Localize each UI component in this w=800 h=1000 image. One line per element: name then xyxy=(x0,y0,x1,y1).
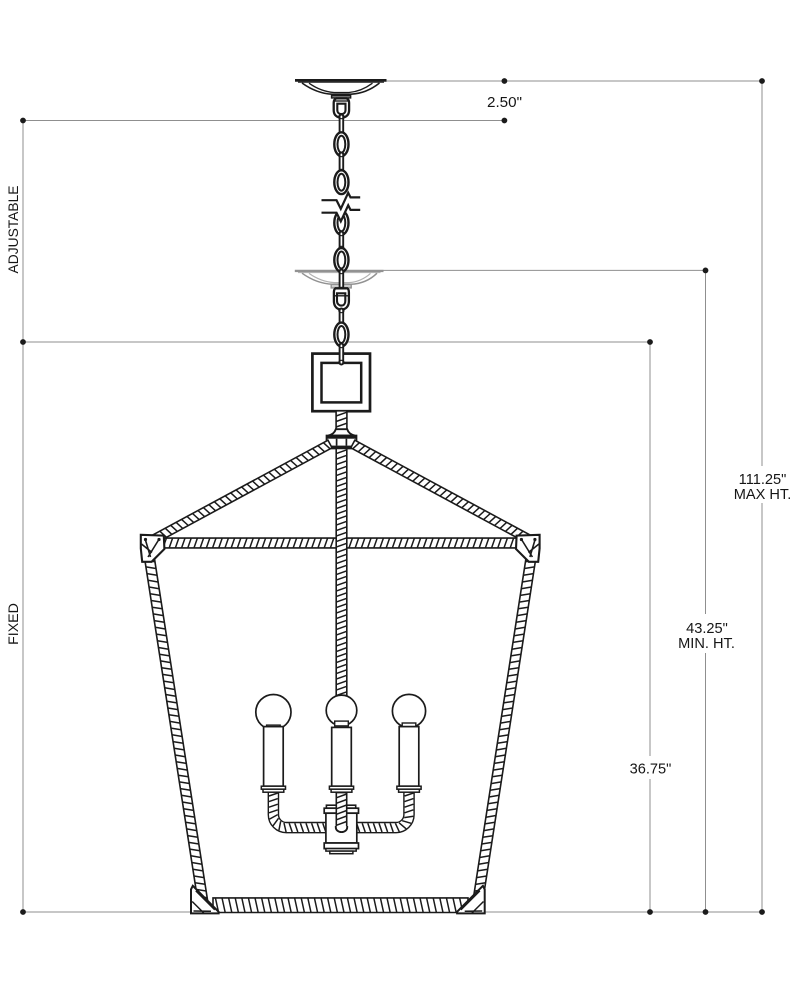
svg-text:MIN. HT.: MIN. HT. xyxy=(678,636,735,652)
svg-text:111.25": 111.25" xyxy=(739,472,787,488)
svg-text:36.75": 36.75" xyxy=(630,762,672,778)
svg-text:43.25": 43.25" xyxy=(686,621,728,637)
svg-text:2.50": 2.50" xyxy=(487,94,522,111)
svg-text:MAX HT.: MAX HT. xyxy=(734,487,792,503)
svg-text:FIXED: FIXED xyxy=(6,603,22,645)
svg-text:ADJUSTABLE: ADJUSTABLE xyxy=(6,186,21,274)
